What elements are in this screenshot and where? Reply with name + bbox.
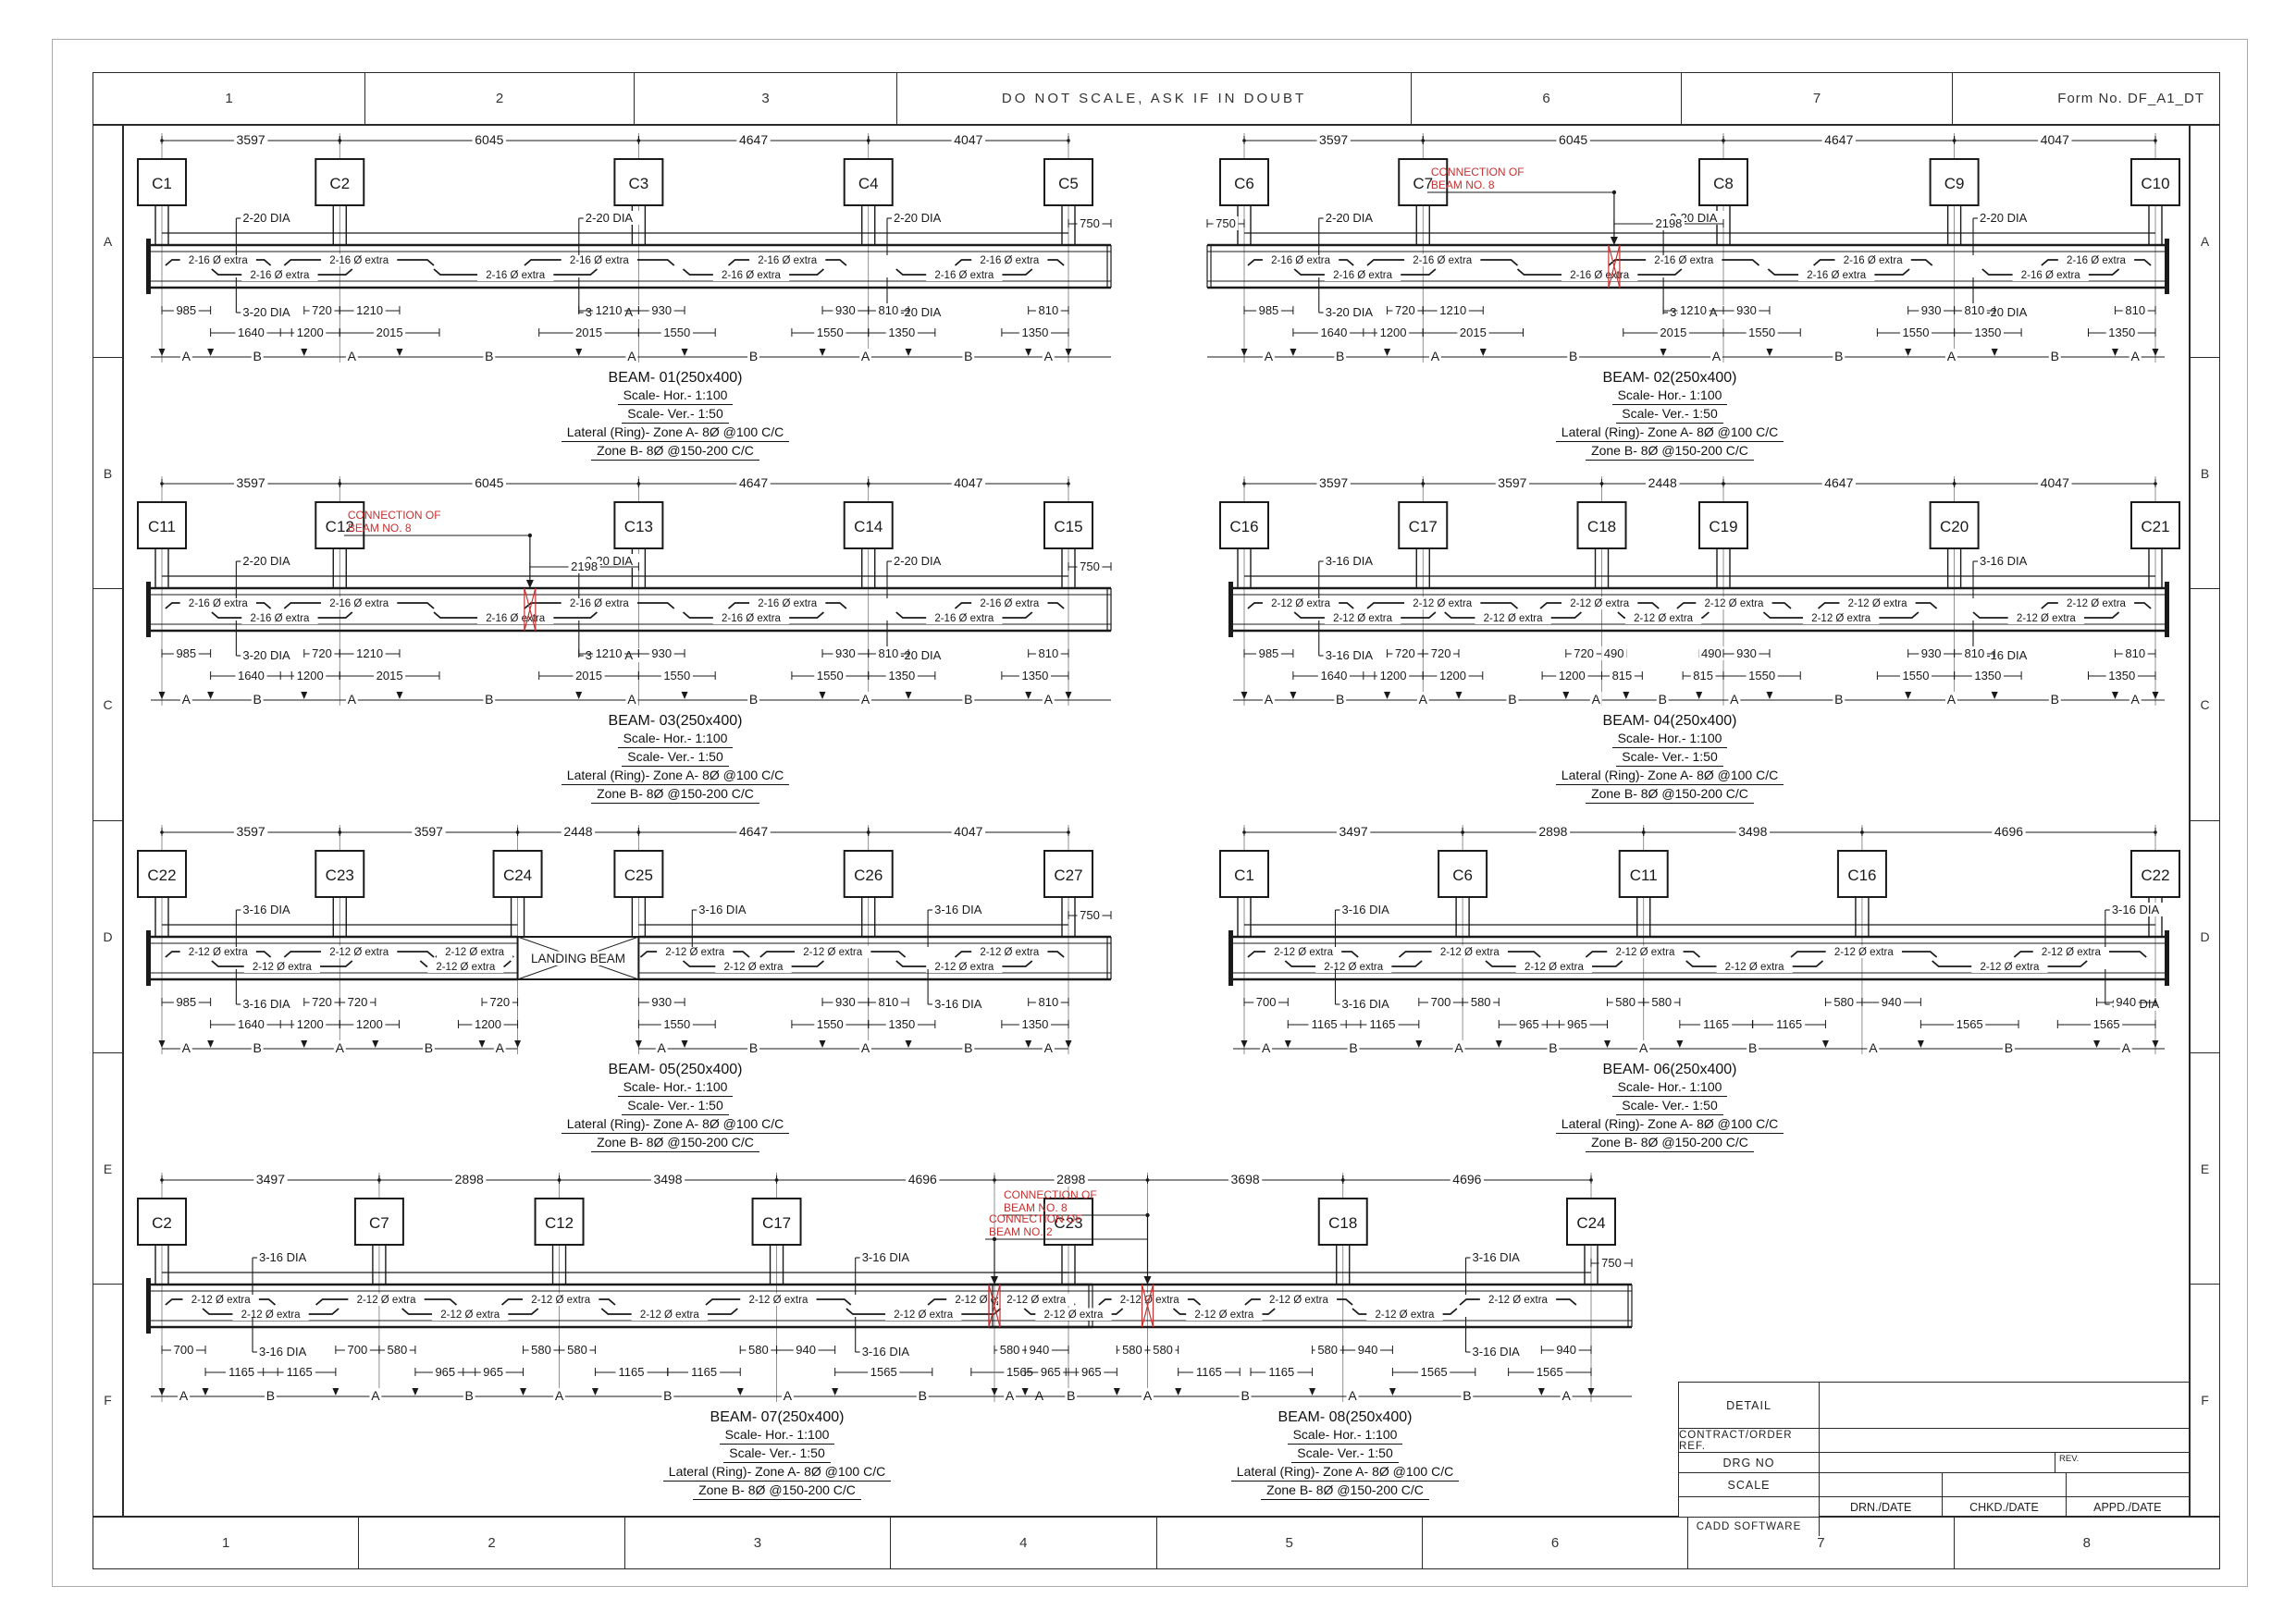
svg-text:A: A: [182, 349, 191, 363]
top-band-cell-3: 3: [635, 73, 897, 124]
titleblock-appd-label: APPD./DATE: [2067, 1497, 2189, 1518]
svg-text:2-12 Ø extra: 2-12 Ø extra: [1488, 1295, 1549, 1306]
svg-text:2-16 Ø extra: 2-16 Ø extra: [1844, 255, 1904, 266]
beam-end-anchor-left: [146, 582, 151, 637]
svg-text:4047: 4047: [2041, 475, 2069, 490]
svg-text:2-12 Ø extra: 2-12 Ø extra: [1440, 947, 1500, 958]
svg-text:1165: 1165: [1703, 1017, 1729, 1031]
beam-end-anchor-left: [146, 930, 151, 986]
svg-text:1550: 1550: [817, 1017, 844, 1031]
svg-text:A: A: [1947, 692, 1957, 707]
svg-text:B: B: [2051, 349, 2059, 363]
svg-text:2-12 Ø extra: 2-12 Ø extra: [1484, 613, 1544, 624]
svg-text:B: B: [1241, 1388, 1249, 1403]
svg-text:A: A: [182, 692, 191, 707]
svg-text:B: B: [919, 1388, 927, 1403]
svg-text:4647: 4647: [739, 475, 768, 490]
svg-text:930: 930: [1736, 303, 1757, 317]
svg-text:2-12 Ø extra: 2-12 Ø extra: [1704, 598, 1764, 609]
titleblock-drgno-label: DRG NO: [1679, 1453, 1820, 1472]
svg-text:2-12 Ø extra: 2-12 Ø extra: [2067, 598, 2127, 609]
svg-text:B: B: [425, 1040, 433, 1055]
column-label-C8: C8: [1713, 175, 1734, 192]
beam-end-anchor-left: [146, 1278, 151, 1334]
svg-text:B: B: [1067, 1388, 1075, 1403]
svg-text:2-16 Ø extra: 2-16 Ø extra: [570, 255, 630, 266]
svg-text:1550: 1550: [663, 1017, 690, 1031]
svg-text:B: B: [1659, 692, 1667, 707]
svg-text:BEAM NO. 8: BEAM NO. 8: [348, 522, 412, 535]
svg-text:2-12 Ø extra: 2-12 Ø extra: [253, 962, 313, 973]
svg-text:A: A: [1592, 692, 1601, 707]
svg-text:3-20 DIA: 3-20 DIA: [242, 648, 290, 662]
svg-text:B: B: [1748, 1040, 1757, 1055]
svg-text:B: B: [253, 692, 262, 707]
svg-text:A: A: [348, 692, 357, 707]
svg-text:720: 720: [312, 995, 332, 1009]
svg-text:720: 720: [1395, 303, 1415, 317]
svg-text:2-12 Ø extra: 2-12 Ø extra: [1524, 962, 1585, 973]
svg-text:720: 720: [348, 995, 368, 1009]
svg-text:A: A: [348, 349, 357, 363]
svg-text:985: 985: [176, 303, 196, 317]
beam-01-drawing: 3597604546474047C1C2C3C4C52-16 Ø extra2-…: [130, 128, 1184, 374]
svg-text:3-16 DIA: 3-16 DIA: [1326, 648, 1374, 662]
right-band-cell-E: E: [2191, 1053, 2219, 1285]
svg-text:A: A: [658, 1040, 667, 1055]
svg-text:810: 810: [2125, 646, 2145, 660]
titleblock-cadd-value: [1820, 1518, 2189, 1536]
column-label-C20: C20: [1940, 518, 1969, 535]
svg-text:2-16 Ø extra: 2-16 Ø extra: [2021, 270, 2081, 281]
svg-text:1165: 1165: [287, 1365, 313, 1379]
svg-text:810: 810: [2125, 303, 2145, 317]
svg-text:A: A: [1431, 349, 1440, 363]
svg-text:A: A: [861, 1040, 870, 1055]
svg-text:2-12 Ø extra: 2-12 Ø extra: [934, 962, 994, 973]
svg-text:A: A: [1869, 1040, 1878, 1055]
svg-text:2-16 Ø extra: 2-16 Ø extra: [758, 255, 818, 266]
svg-text:B: B: [749, 1040, 758, 1055]
svg-text:A: A: [1419, 692, 1428, 707]
svg-text:2015: 2015: [575, 669, 602, 682]
svg-text:720: 720: [1395, 646, 1415, 660]
column-label-C5: C5: [1058, 175, 1079, 192]
svg-text:A: A: [179, 1388, 189, 1403]
column-label-C27: C27: [1054, 867, 1082, 884]
svg-text:1640: 1640: [238, 669, 265, 682]
svg-text:1210: 1210: [596, 646, 623, 660]
svg-text:720: 720: [1574, 646, 1594, 660]
svg-text:B: B: [749, 349, 758, 363]
svg-text:810: 810: [1038, 646, 1058, 660]
column-label-C1: C1: [152, 175, 172, 192]
titleblock-cadd-label: CADD SOFTWARE: [1679, 1518, 1820, 1536]
bottom-band-cell-6: 6: [1423, 1518, 1688, 1568]
svg-text:B: B: [2051, 692, 2059, 707]
svg-text:2898: 2898: [1056, 1172, 1085, 1187]
svg-text:A: A: [1265, 349, 1274, 363]
top-band-cell-4: DO NOT SCALE, ASK IF IN DOUBT: [897, 73, 1412, 124]
svg-text:B: B: [485, 349, 493, 363]
svg-text:985: 985: [176, 995, 196, 1009]
svg-text:2-16 Ø extra: 2-16 Ø extra: [722, 613, 782, 624]
svg-text:2015: 2015: [376, 669, 403, 682]
svg-text:1640: 1640: [1320, 326, 1347, 339]
svg-text:2015: 2015: [1460, 326, 1487, 339]
svg-text:3597: 3597: [237, 475, 265, 490]
svg-text:2-12 Ø extra: 2-12 Ø extra: [1333, 613, 1393, 624]
svg-text:3-16 DIA: 3-16 DIA: [259, 1250, 307, 1264]
top-band-cell-1: 1: [93, 73, 365, 124]
drawing-sheet: 123DO NOT SCALE, ASK IF IN DOUBT67Form N…: [0, 0, 2296, 1623]
svg-text:965: 965: [1519, 1017, 1539, 1031]
beam-03-title: BEAM- 03(250x400): [435, 713, 916, 730]
svg-text:A: A: [627, 349, 636, 363]
svg-text:1550: 1550: [663, 669, 690, 682]
svg-text:940: 940: [1358, 1343, 1378, 1357]
top-border-band: 123DO NOT SCALE, ASK IF IN DOUBT67Form N…: [93, 72, 2220, 125]
svg-text:3597: 3597: [1319, 132, 1348, 147]
svg-text:2-12 Ø extra: 2-12 Ø extra: [1634, 613, 1694, 624]
svg-text:1200: 1200: [1380, 326, 1407, 339]
svg-text:750: 750: [1080, 216, 1100, 230]
svg-text:2-20 DIA: 2-20 DIA: [1980, 211, 2028, 225]
svg-text:1210: 1210: [596, 303, 623, 317]
svg-text:940: 940: [2116, 995, 2136, 1009]
beam-06-caption: BEAM- 06(250x400)Scale- Hor.- 1:100Scale…: [1429, 1062, 1910, 1152]
svg-text:3-16 DIA: 3-16 DIA: [1980, 554, 2028, 568]
svg-text:4647: 4647: [1824, 132, 1853, 147]
beam-02-drawing: 3597604546474047C6C7C8C9C102-16 Ø extra2…: [1184, 128, 2202, 374]
beam-07-title: BEAM- 07(250x400): [537, 1409, 1018, 1426]
beam-02-caption: BEAM- 02(250x400)Scale- Hor.- 1:100Scale…: [1429, 370, 1910, 461]
svg-text:2-16 Ø extra: 2-16 Ø extra: [486, 613, 546, 624]
svg-text:6045: 6045: [1559, 132, 1587, 147]
beam-end-anchor-left: [146, 239, 151, 294]
svg-text:B: B: [1349, 1040, 1357, 1055]
svg-text:2-12 Ø extra: 2-12 Ø extra: [665, 947, 725, 958]
svg-text:2-12 Ø extra: 2-12 Ø extra: [1269, 1295, 1329, 1306]
svg-text:720: 720: [1431, 646, 1451, 660]
column-label-C7: C7: [369, 1214, 389, 1232]
svg-text:4647: 4647: [1824, 475, 1853, 490]
left-border-band: ABCDEF: [93, 125, 123, 1517]
svg-text:2-12 Ø extra: 2-12 Ø extra: [2042, 947, 2102, 958]
svg-text:A: A: [336, 1040, 345, 1055]
column-label-C14: C14: [854, 518, 883, 535]
svg-text:985: 985: [1259, 303, 1279, 317]
beam-08-caption: BEAM- 08(250x400)Scale- Hor.- 1:100Scale…: [1105, 1409, 1586, 1500]
svg-text:700: 700: [1256, 995, 1277, 1009]
svg-text:CONNECTION OF: CONNECTION OF: [1431, 166, 1524, 178]
svg-text:BEAM NO. 8: BEAM NO. 8: [1431, 178, 1495, 191]
svg-text:B: B: [1336, 692, 1344, 707]
svg-text:A: A: [2122, 1040, 2131, 1055]
left-band-cell-F: F: [93, 1285, 122, 1516]
svg-text:3-20 DIA: 3-20 DIA: [242, 305, 290, 319]
svg-text:2-12 Ø extra: 2-12 Ø extra: [1834, 947, 1895, 958]
svg-text:2-12 Ø extra: 2-12 Ø extra: [1006, 1295, 1067, 1306]
svg-text:930: 930: [1921, 303, 1942, 317]
beam-08-connection-annotation: CONNECTION OFBEAM NO. 8: [1000, 1188, 1154, 1327]
svg-text:B: B: [253, 1040, 262, 1055]
beam-end-anchor-right: [2165, 930, 2169, 986]
svg-text:B: B: [465, 1388, 474, 1403]
column-label-C18: C18: [1328, 1214, 1357, 1232]
svg-text:2-16 Ø extra: 2-16 Ø extra: [189, 255, 249, 266]
svg-text:965: 965: [1567, 1017, 1587, 1031]
svg-text:A: A: [2131, 692, 2141, 707]
svg-text:CONNECTION OF: CONNECTION OF: [348, 509, 441, 522]
svg-text:1200: 1200: [475, 1017, 501, 1031]
beam-06-title: BEAM- 06(250x400): [1429, 1062, 1910, 1078]
svg-text:CONNECTION OF: CONNECTION OF: [1004, 1188, 1097, 1201]
column-label-C13: C13: [624, 518, 653, 535]
svg-text:1350: 1350: [1974, 669, 2001, 682]
left-band-cell-A: A: [93, 126, 122, 358]
svg-text:1640: 1640: [238, 326, 265, 339]
svg-text:1165: 1165: [1370, 1017, 1396, 1031]
svg-text:3-16 DIA: 3-16 DIA: [862, 1345, 910, 1359]
svg-text:3698: 3698: [1231, 1172, 1260, 1187]
svg-text:815: 815: [1693, 669, 1713, 682]
svg-text:750: 750: [1080, 559, 1100, 573]
svg-text:B: B: [749, 692, 758, 707]
svg-text:1200: 1200: [297, 669, 324, 682]
svg-text:A: A: [1947, 349, 1957, 363]
svg-text:2-12 Ø extra: 2-12 Ø extra: [241, 1309, 302, 1321]
svg-text:580: 580: [1833, 995, 1854, 1009]
titleblock-drn-label: DRN./DATE: [1820, 1497, 1943, 1518]
svg-text:2015: 2015: [575, 326, 602, 339]
svg-text:2-12 Ø extra: 2-12 Ø extra: [640, 1309, 700, 1321]
svg-text:2-16 Ø extra: 2-16 Ø extra: [1333, 270, 1393, 281]
svg-text:930: 930: [651, 303, 672, 317]
svg-text:580: 580: [748, 1343, 769, 1357]
svg-text:2-12 Ø extra: 2-12 Ø extra: [329, 947, 389, 958]
svg-text:2-16 Ø extra: 2-16 Ø extra: [250, 270, 310, 281]
svg-text:1350: 1350: [888, 326, 915, 339]
svg-text:6045: 6045: [475, 475, 503, 490]
column-label-C16: C16: [1847, 867, 1876, 884]
svg-text:580: 580: [1000, 1343, 1020, 1357]
svg-text:810: 810: [879, 303, 899, 317]
svg-text:2-12 Ø extra: 2-12 Ø extra: [1271, 598, 1331, 609]
bottom-band-cell-5: 5: [1157, 1518, 1423, 1568]
svg-text:2-16 Ø extra: 2-16 Ø extra: [329, 255, 389, 266]
svg-text:930: 930: [835, 646, 856, 660]
svg-text:1350: 1350: [888, 669, 915, 682]
svg-text:3597: 3597: [414, 824, 443, 839]
svg-text:2015: 2015: [376, 326, 403, 339]
svg-text:1350: 1350: [1021, 669, 1048, 682]
svg-text:B: B: [1463, 1388, 1471, 1403]
titleblock-scale-label: SCALE: [1679, 1473, 1820, 1496]
svg-text:940: 940: [1882, 995, 1902, 1009]
svg-text:1165: 1165: [1776, 1017, 1802, 1031]
svg-text:B: B: [663, 1388, 672, 1403]
svg-text:1210: 1210: [1439, 303, 1466, 317]
beam-end-anchor-left: [1228, 930, 1233, 986]
svg-text:2198: 2198: [1655, 216, 1682, 230]
svg-text:965: 965: [1041, 1365, 1061, 1379]
svg-text:2-16 Ø extra: 2-16 Ø extra: [980, 255, 1040, 266]
svg-text:810: 810: [1038, 995, 1058, 1009]
column-label-C22: C22: [2141, 867, 2169, 884]
svg-text:1550: 1550: [663, 326, 690, 339]
beam-03-caption: BEAM- 03(250x400)Scale- Hor.- 1:100Scale…: [435, 713, 916, 804]
beam-04-title: BEAM- 04(250x400): [1429, 713, 1910, 730]
svg-text:3498: 3498: [653, 1172, 682, 1187]
svg-text:490: 490: [1701, 646, 1722, 660]
beam-01-title: BEAM- 01(250x400): [435, 370, 916, 387]
column-label-C7: C7: [1413, 175, 1433, 192]
svg-text:4047: 4047: [954, 824, 982, 839]
svg-text:1165: 1165: [1312, 1017, 1338, 1031]
beam-08-drawing: 289836984696C18C242-12 Ø extra2-12 Ø ext…: [962, 1167, 1665, 1413]
svg-text:B: B: [964, 692, 972, 707]
svg-text:490: 490: [1604, 646, 1624, 660]
svg-text:580: 580: [1153, 1343, 1173, 1357]
svg-text:930: 930: [835, 303, 856, 317]
svg-text:A: A: [371, 1388, 380, 1403]
svg-text:2-12 Ø extra: 2-12 Ø extra: [980, 947, 1040, 958]
column-label-C1: C1: [1234, 867, 1254, 884]
svg-text:1550: 1550: [817, 669, 844, 682]
svg-text:2-12 Ø extra: 2-12 Ø extra: [445, 947, 505, 958]
svg-text:1550: 1550: [1903, 326, 1930, 339]
svg-text:A: A: [1006, 1388, 1015, 1403]
svg-text:3-16 DIA: 3-16 DIA: [1473, 1345, 1521, 1359]
svg-text:4047: 4047: [954, 475, 982, 490]
column-label-C18: C18: [1587, 518, 1616, 535]
beam-07-caption: BEAM- 07(250x400)Scale- Hor.- 1:100Scale…: [537, 1409, 1018, 1500]
beam-06-drawing: 3497289834984696C1C6C11C16C222-12 Ø extr…: [1184, 819, 2202, 1065]
svg-text:4047: 4047: [2041, 132, 2069, 147]
svg-text:2-12 Ø extra: 2-12 Ø extra: [357, 1295, 417, 1306]
svg-text:B: B: [1508, 692, 1516, 707]
svg-text:A: A: [627, 692, 636, 707]
svg-text:1565: 1565: [1537, 1365, 1563, 1379]
svg-text:930: 930: [1921, 646, 1942, 660]
svg-text:3497: 3497: [256, 1172, 285, 1187]
svg-text:2-16 Ø extra: 2-16 Ø extra: [1570, 270, 1630, 281]
svg-text:3498: 3498: [1738, 824, 1767, 839]
bottom-band-cell-3: 3: [625, 1518, 891, 1568]
svg-text:1550: 1550: [817, 326, 844, 339]
svg-text:1210: 1210: [1680, 303, 1707, 317]
beam-end-anchor-right: [2165, 239, 2169, 294]
svg-text:930: 930: [651, 646, 672, 660]
svg-text:3-16 DIA: 3-16 DIA: [242, 903, 290, 916]
svg-text:580: 580: [567, 1343, 587, 1357]
svg-text:940: 940: [796, 1343, 816, 1357]
svg-text:1350: 1350: [1021, 326, 1048, 339]
svg-text:A: A: [1265, 692, 1274, 707]
beam-01-caption: BEAM- 01(250x400)Scale- Hor.- 1:100Scale…: [435, 370, 916, 461]
svg-text:2-12 Ø extra: 2-12 Ø extra: [1274, 947, 1334, 958]
svg-text:580: 580: [1471, 995, 1491, 1009]
column-label-C25: C25: [624, 867, 653, 884]
beam-02-title: BEAM- 02(250x400): [1429, 370, 1910, 387]
svg-text:1640: 1640: [238, 1017, 265, 1031]
svg-text:810: 810: [1965, 303, 1985, 317]
svg-text:965: 965: [483, 1365, 503, 1379]
svg-text:720: 720: [312, 303, 332, 317]
svg-text:A: A: [2131, 349, 2141, 363]
beam-05-title: BEAM- 05(250x400): [435, 1062, 916, 1078]
svg-text:2-16 Ø extra: 2-16 Ø extra: [1654, 255, 1714, 266]
column-label-C19: C19: [1709, 518, 1737, 535]
svg-text:2-20 DIA: 2-20 DIA: [242, 554, 290, 568]
svg-text:3-16 DIA: 3-16 DIA: [1473, 1250, 1521, 1264]
svg-text:965: 965: [435, 1365, 455, 1379]
svg-text:1565: 1565: [2093, 1017, 2120, 1031]
svg-text:2-16 Ø extra: 2-16 Ø extra: [1271, 255, 1331, 266]
svg-text:3-16 DIA: 3-16 DIA: [1342, 903, 1390, 916]
svg-text:A: A: [784, 1388, 793, 1403]
column-label-C21: C21: [2141, 518, 2169, 535]
svg-text:2448: 2448: [563, 824, 592, 839]
svg-text:2-12 Ø extra: 2-12 Ø extra: [191, 1295, 252, 1306]
svg-text:2-12 Ø extra: 2-12 Ø extra: [1194, 1309, 1254, 1321]
titleblock-drgno-value: [1820, 1453, 2055, 1472]
svg-text:1200: 1200: [297, 1017, 324, 1031]
svg-text:1200: 1200: [1559, 669, 1586, 682]
svg-text:1200: 1200: [1380, 669, 1407, 682]
svg-text:3-20 DIA: 3-20 DIA: [1326, 305, 1374, 319]
svg-text:2-16 Ø extra: 2-16 Ø extra: [980, 598, 1040, 609]
svg-text:A: A: [1262, 1040, 1271, 1055]
svg-text:810: 810: [879, 995, 899, 1009]
column-label-C16: C16: [1229, 518, 1258, 535]
svg-text:3497: 3497: [1339, 824, 1367, 839]
svg-text:2198: 2198: [571, 559, 598, 573]
svg-text:3-16 DIA: 3-16 DIA: [1326, 554, 1374, 568]
beam-04-caption: BEAM- 04(250x400)Scale- Hor.- 1:100Scale…: [1429, 713, 1910, 804]
svg-text:A: A: [1454, 1040, 1463, 1055]
svg-text:1550: 1550: [1903, 669, 1930, 682]
svg-text:1165: 1165: [1196, 1365, 1222, 1379]
svg-text:2-16 Ø extra: 2-16 Ø extra: [250, 613, 310, 624]
svg-text:580: 580: [388, 1343, 408, 1357]
column-label-C15: C15: [1054, 518, 1082, 535]
svg-text:930: 930: [1736, 646, 1757, 660]
svg-text:B: B: [1834, 349, 1843, 363]
svg-text:2-12 Ø extra: 2-12 Ø extra: [1615, 947, 1675, 958]
svg-text:B: B: [964, 1040, 972, 1055]
svg-text:965: 965: [1081, 1365, 1102, 1379]
column-label-C22: C22: [147, 867, 176, 884]
svg-text:700: 700: [1431, 995, 1451, 1009]
svg-text:1210: 1210: [356, 303, 383, 317]
svg-text:2448: 2448: [1648, 475, 1677, 490]
svg-text:2-12 Ø extra: 2-12 Ø extra: [189, 947, 249, 958]
svg-text:1565: 1565: [870, 1365, 897, 1379]
svg-text:1565: 1565: [1421, 1365, 1448, 1379]
column-label-C6: C6: [1452, 867, 1473, 884]
svg-text:6045: 6045: [475, 132, 503, 147]
svg-text:2-12 Ø extra: 2-12 Ø extra: [1725, 962, 1785, 973]
beam-end-anchor-right: [2165, 582, 2169, 637]
svg-text:2015: 2015: [1660, 326, 1686, 339]
beam-08-title: BEAM- 08(250x400): [1105, 1409, 1586, 1426]
svg-text:3597: 3597: [1319, 475, 1348, 490]
svg-text:2-12 Ø extra: 2-12 Ø extra: [531, 1295, 591, 1306]
svg-text:3-16 DIA: 3-16 DIA: [242, 997, 290, 1011]
svg-text:A: A: [1712, 349, 1722, 363]
